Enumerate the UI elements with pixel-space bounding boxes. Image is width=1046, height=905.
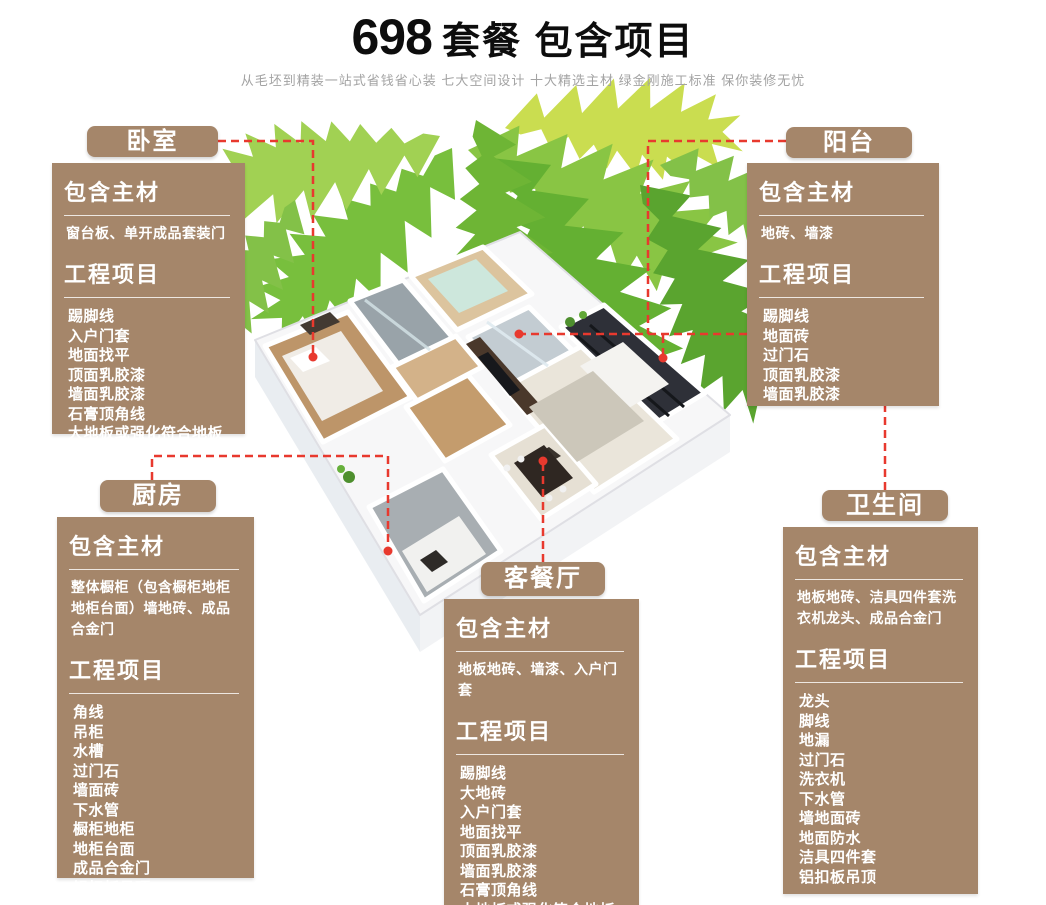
- bedroom-projects-list: 踢脚线入户门套地面找平顶面乳胶漆墙面乳胶漆石膏顶角线大地板或强化符合地板: [68, 307, 234, 444]
- kitchen-materials: 整体橱柜（包含橱柜地柜地柜台面）墙地砖、成品合金门: [71, 577, 243, 640]
- bedroom-panel: 包含主材 窗台板、单开成品套装门 工程项目 踢脚线入户门套地面找平顶面乳胶漆墙面…: [52, 163, 245, 434]
- project-item: 过门石: [799, 751, 967, 771]
- kitchen-projects-list: 角线吊柜水槽过门石墙面砖下水管橱柜地柜地柜台面成品合金门铝扣板吊顶: [73, 703, 243, 898]
- bedroom-materials: 窗台板、单开成品套装门: [66, 223, 234, 244]
- project-item: 吊柜: [73, 723, 243, 743]
- project-item: 脚线: [799, 712, 967, 732]
- project-item: 墙面乳胶漆: [460, 862, 628, 882]
- living-panel: 包含主材 地板地砖、墙漆、入户门套 工程项目 踢脚线大地砖入户门套地面找平顶面乳…: [444, 599, 639, 905]
- project-item: 地柜台面: [73, 840, 243, 860]
- tab-bathroom: 卫生间: [822, 490, 948, 521]
- kitchen-dot: [384, 547, 393, 556]
- bathroom-panel: 包含主材 地板地砖、洁具四件套洗衣机龙头、成品合金门 工程项目 龙头脚线地漏过门…: [783, 527, 978, 894]
- tab-living: 客餐厅: [481, 562, 605, 596]
- project-item: 顶面乳胶漆: [460, 842, 628, 862]
- kitchen-materials-title: 包含主材: [69, 529, 239, 570]
- project-item: 水槽: [73, 742, 243, 762]
- tab-bedroom: 卧室: [87, 126, 218, 157]
- project-item: 顶面乳胶漆: [68, 366, 234, 386]
- page-title: 698套餐 包含项目: [0, 8, 1046, 66]
- living-projects-list: 踢脚线大地砖入户门套地面找平顶面乳胶漆墙面乳胶漆石膏顶角线大地板或强化符合地板: [460, 764, 628, 905]
- project-item: 地面找平: [68, 346, 234, 366]
- kitchen-projects-title: 工程项目: [69, 653, 239, 694]
- balcony-projects-title: 工程项目: [759, 257, 924, 298]
- balcony-materials-title: 包含主材: [759, 175, 924, 216]
- project-item: 铝扣板吊顶: [799, 868, 967, 888]
- project-item: 大地板或强化符合地板: [68, 424, 234, 444]
- project-item: 地面砖: [763, 327, 928, 347]
- bathroom-projects-list: 龙头脚线地漏过门石洗衣机下水管墙地面砖地面防水洁具四件套铝扣板吊顶: [799, 692, 967, 887]
- project-item: 入户门套: [460, 803, 628, 823]
- project-item: 石膏顶角线: [460, 881, 628, 901]
- project-item: 地面找平: [460, 823, 628, 843]
- living-materials-title: 包含主材: [456, 611, 624, 652]
- project-item: 墙面乳胶漆: [763, 385, 928, 405]
- tab-kitchen: 厨房: [100, 480, 216, 512]
- project-item: 石膏顶角线: [68, 405, 234, 425]
- balcony-materials: 地砖、墙漆: [761, 223, 928, 244]
- bathroom-dot: [515, 330, 524, 339]
- project-item: 铝扣板吊顶: [73, 879, 243, 899]
- project-item: 下水管: [73, 801, 243, 821]
- project-item: 墙面乳胶漆: [68, 385, 234, 405]
- balcony-dot: [659, 354, 668, 363]
- project-item: 成品合金门: [73, 859, 243, 879]
- page-title-text: 套餐 包含项目: [442, 21, 695, 63]
- page-title-number: 698: [352, 9, 432, 65]
- infographic: 698套餐 包含项目 从毛坯到精装一站式省钱省心装 七大空间设计 十大精选主材 …: [0, 0, 1046, 905]
- project-item: 踢脚线: [460, 764, 628, 784]
- project-item: 角线: [73, 703, 243, 723]
- project-item: 墙地面砖: [799, 809, 967, 829]
- project-item: 顶面乳胶漆: [763, 366, 928, 386]
- living-materials: 地板地砖、墙漆、入户门套: [458, 659, 628, 701]
- bedroom-materials-title: 包含主材: [64, 175, 230, 216]
- project-item: 墙面砖: [73, 781, 243, 801]
- balcony-projects-list: 踢脚线地面砖过门石顶面乳胶漆墙面乳胶漆: [763, 307, 928, 405]
- project-item: 下水管: [799, 790, 967, 810]
- project-item: 过门石: [763, 346, 928, 366]
- project-item: 地漏: [799, 731, 967, 751]
- project-item: 橱柜地柜: [73, 820, 243, 840]
- project-item: 洗衣机: [799, 770, 967, 790]
- bathroom-materials: 地板地砖、洁具四件套洗衣机龙头、成品合金门: [797, 587, 967, 629]
- tab-balcony: 阳台: [786, 127, 912, 158]
- bathroom-projects-title: 工程项目: [795, 642, 963, 683]
- page-subtitle: 从毛坯到精装一站式省钱省心装 七大空间设计 十大精选主材 绿金刚施工标准 保你装…: [0, 70, 1046, 89]
- project-item: 踢脚线: [763, 307, 928, 327]
- balcony-panel: 包含主材 地砖、墙漆 工程项目 踢脚线地面砖过门石顶面乳胶漆墙面乳胶漆: [747, 163, 939, 406]
- project-item: 地面防水: [799, 829, 967, 849]
- project-item: 洁具四件套: [799, 848, 967, 868]
- project-item: 龙头: [799, 692, 967, 712]
- project-item: 大地砖: [460, 784, 628, 804]
- kitchen-panel: 包含主材 整体橱柜（包含橱柜地柜地柜台面）墙地砖、成品合金门 工程项目 角线吊柜…: [57, 517, 254, 878]
- living-projects-title: 工程项目: [456, 714, 624, 755]
- project-item: 大地板或强化符合地板: [460, 901, 628, 905]
- bedroom-dot: [309, 353, 318, 362]
- project-item: 过门石: [73, 762, 243, 782]
- project-item: 入户门套: [68, 327, 234, 347]
- bathroom-materials-title: 包含主材: [795, 539, 963, 580]
- bedroom-projects-title: 工程项目: [64, 257, 230, 298]
- project-item: 踢脚线: [68, 307, 234, 327]
- living-dot: [539, 457, 548, 466]
